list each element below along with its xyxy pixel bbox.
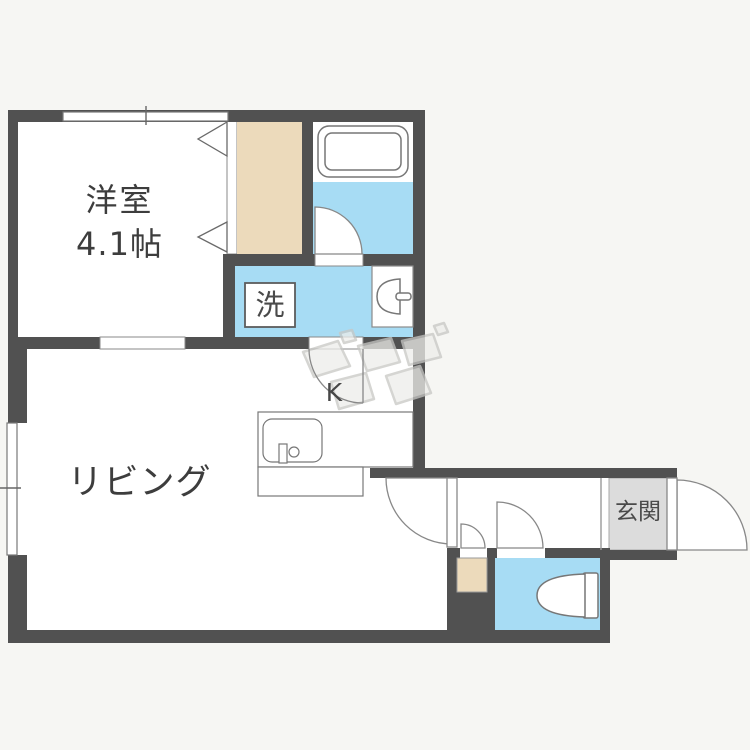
toilet-doorway bbox=[497, 548, 545, 558]
label-western-room: 洋室 bbox=[37, 184, 202, 216]
entrance-door-swing bbox=[677, 480, 747, 550]
wall-living-bottom bbox=[8, 630, 457, 643]
kitchen-faucet-knob bbox=[289, 447, 299, 457]
bath-doorway bbox=[315, 254, 363, 266]
wall-left-mid bbox=[8, 337, 27, 423]
floorplan-drawing bbox=[0, 0, 750, 750]
label-western-room-size: 4.1帖 bbox=[37, 228, 202, 260]
floorplan-page: { "rooms": { "western_room": { "label": … bbox=[0, 0, 750, 750]
label-living-room: リビング bbox=[57, 466, 222, 501]
storage-floor bbox=[457, 558, 487, 592]
entrance-door-leaf bbox=[667, 478, 677, 550]
living-door-leaf bbox=[447, 478, 457, 547]
kitchen-faucet bbox=[279, 444, 287, 463]
label-kitchen: K bbox=[316, 380, 352, 405]
window-left bbox=[7, 423, 17, 555]
wall-right bbox=[413, 110, 425, 478]
wall-left-upper bbox=[8, 110, 18, 349]
western-living-doorway bbox=[100, 337, 185, 349]
closet-floor bbox=[237, 121, 302, 254]
label-laundry: 洗 bbox=[245, 291, 295, 320]
wall-closet-right bbox=[302, 121, 313, 266]
storage-doorway bbox=[460, 548, 487, 558]
closet-door-track bbox=[227, 121, 237, 254]
kitchen-lower-counter bbox=[258, 467, 363, 496]
label-entrance: 玄関 bbox=[608, 501, 668, 524]
wall-hallway-top bbox=[370, 468, 677, 478]
wall-western-right bbox=[223, 254, 235, 349]
wall-left-lower bbox=[8, 555, 27, 643]
wall-entrance-bottom bbox=[600, 550, 677, 560]
vanity-faucet bbox=[396, 293, 411, 300]
bathtub-inner bbox=[325, 133, 401, 170]
